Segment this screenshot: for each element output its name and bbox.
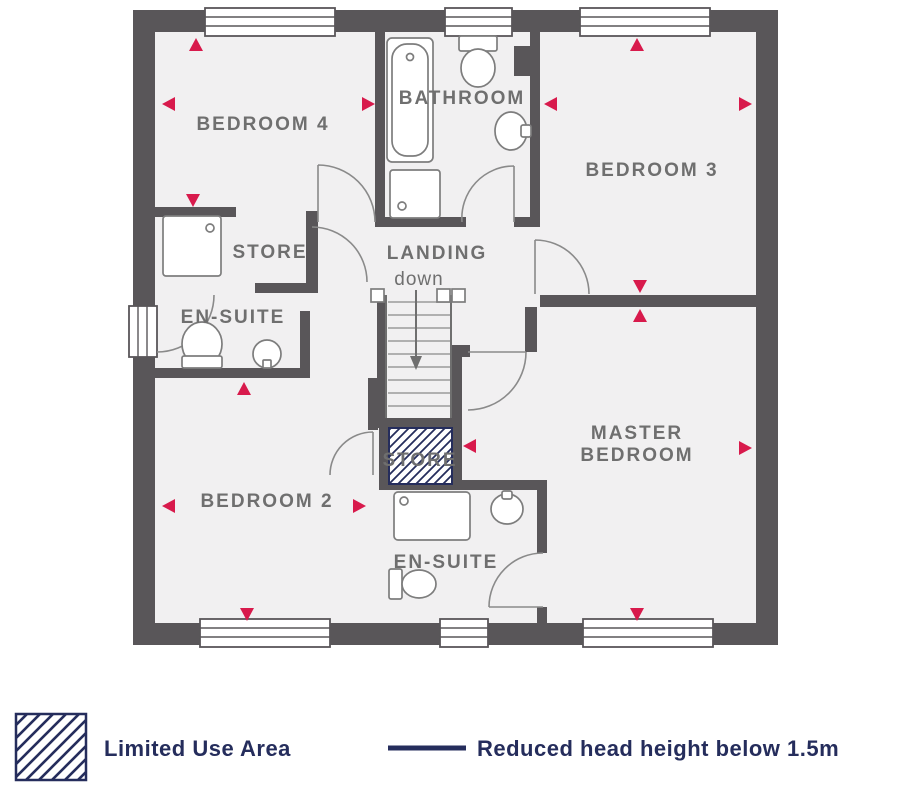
room-label-store-left: STORE bbox=[232, 242, 307, 263]
room-label-landing-down: down bbox=[394, 269, 443, 290]
window-bottom-master bbox=[583, 619, 713, 647]
newel-post bbox=[371, 289, 384, 302]
room-label-landing: LANDING bbox=[387, 243, 488, 264]
shower-tray bbox=[394, 492, 470, 540]
window-top-bathroom bbox=[445, 8, 512, 36]
room-label-bedroom2: BEDROOM 2 bbox=[200, 491, 333, 512]
legend-reduced-head-label: Reduced head height below 1.5m bbox=[477, 736, 839, 761]
room-label-bedroom3: BEDROOM 3 bbox=[585, 160, 718, 181]
sink bbox=[253, 340, 281, 368]
window-bottom-bedroom2 bbox=[200, 619, 330, 647]
legend-hatch-swatch-icon bbox=[16, 714, 86, 780]
room-label-bathroom: BATHROOM bbox=[399, 88, 525, 109]
room-label-ensuite-bottom: EN-SUITE bbox=[394, 552, 499, 573]
window-top-bedroom3 bbox=[580, 8, 710, 36]
room-label-bedroom4: BEDROOM 4 bbox=[196, 114, 329, 135]
shower-tray bbox=[390, 170, 440, 218]
newel-post bbox=[452, 289, 465, 302]
floor-plan-page: BEDROOM 4 BATHROOM BEDROOM 3 STORE EN-SU… bbox=[0, 0, 900, 794]
window-bottom-ensuite bbox=[440, 619, 488, 647]
legend-limited-use-label: Limited Use Area bbox=[104, 736, 291, 761]
toilet bbox=[459, 36, 497, 87]
floor-plan-figure: BEDROOM 4 BATHROOM BEDROOM 3 STORE EN-SU… bbox=[0, 0, 900, 794]
newel-post bbox=[437, 289, 450, 302]
toilet bbox=[182, 322, 222, 368]
window-left-ensuite bbox=[129, 306, 157, 357]
window-top-bedroom4 bbox=[205, 8, 335, 36]
toilet bbox=[389, 569, 436, 599]
room-label-ensuite-left: EN-SUITE bbox=[181, 307, 286, 328]
room-label-store-hatched: STORE bbox=[382, 450, 457, 471]
shower-tray bbox=[163, 216, 221, 276]
room-label-master-line2: BEDROOM bbox=[580, 445, 693, 466]
room-label-master-line1: MASTER bbox=[591, 423, 683, 444]
